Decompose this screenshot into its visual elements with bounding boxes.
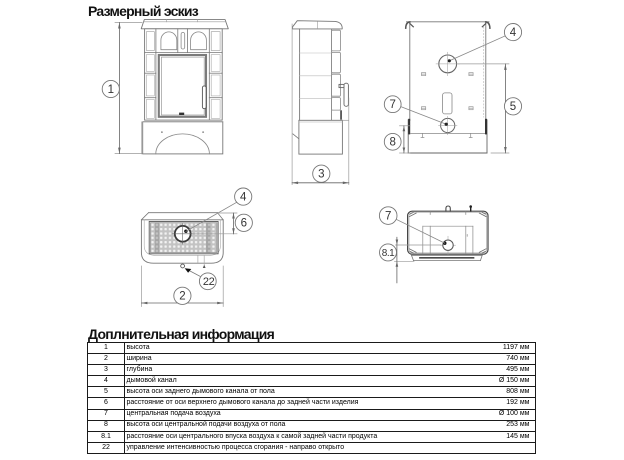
svg-text:22: 22 — [203, 276, 215, 288]
svg-text:2: 2 — [179, 291, 185, 303]
svg-text:5: 5 — [510, 101, 516, 113]
svg-text:3: 3 — [318, 169, 324, 181]
svg-text:8.1: 8.1 — [382, 248, 395, 259]
svg-text:7: 7 — [385, 211, 391, 223]
svg-text:7: 7 — [389, 99, 395, 111]
svg-text:4: 4 — [240, 191, 247, 203]
svg-text:1: 1 — [108, 84, 114, 96]
svg-text:6: 6 — [241, 218, 247, 230]
svg-text:8: 8 — [389, 137, 395, 149]
svg-text:4: 4 — [510, 27, 517, 39]
